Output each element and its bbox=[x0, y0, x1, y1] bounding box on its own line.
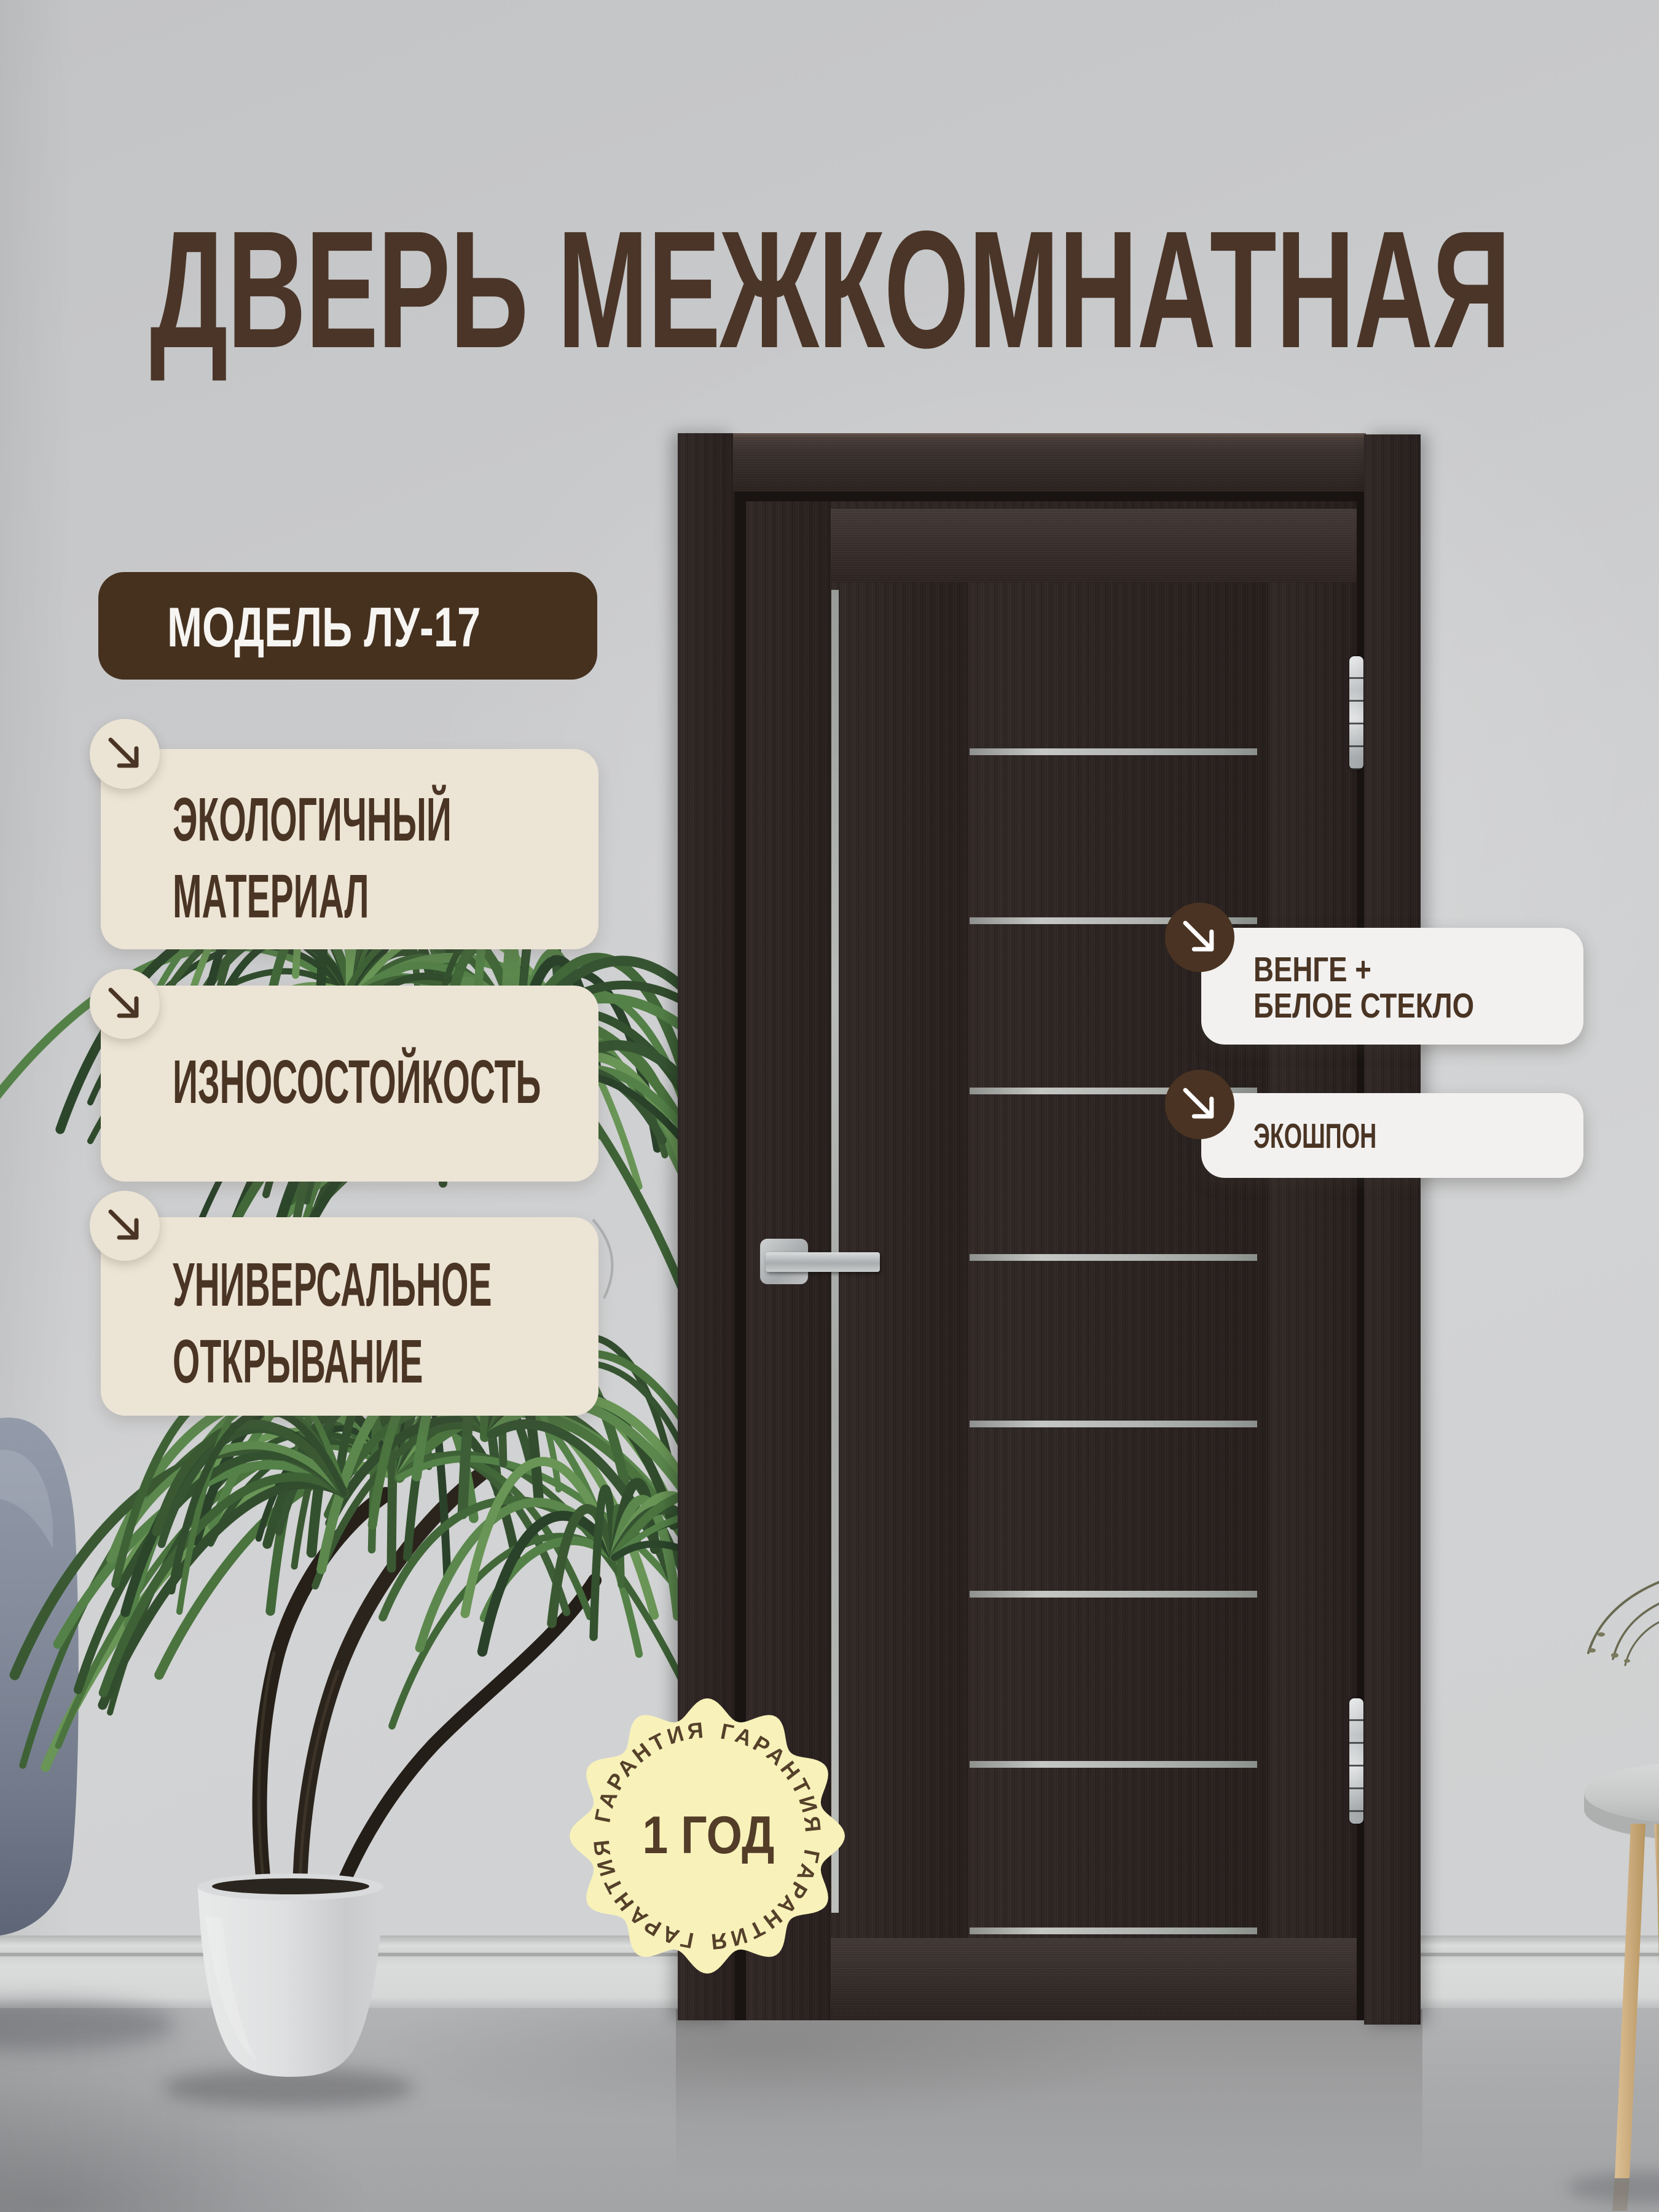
svg-text:1 ГОД: 1 ГОД bbox=[643, 1806, 775, 1865]
